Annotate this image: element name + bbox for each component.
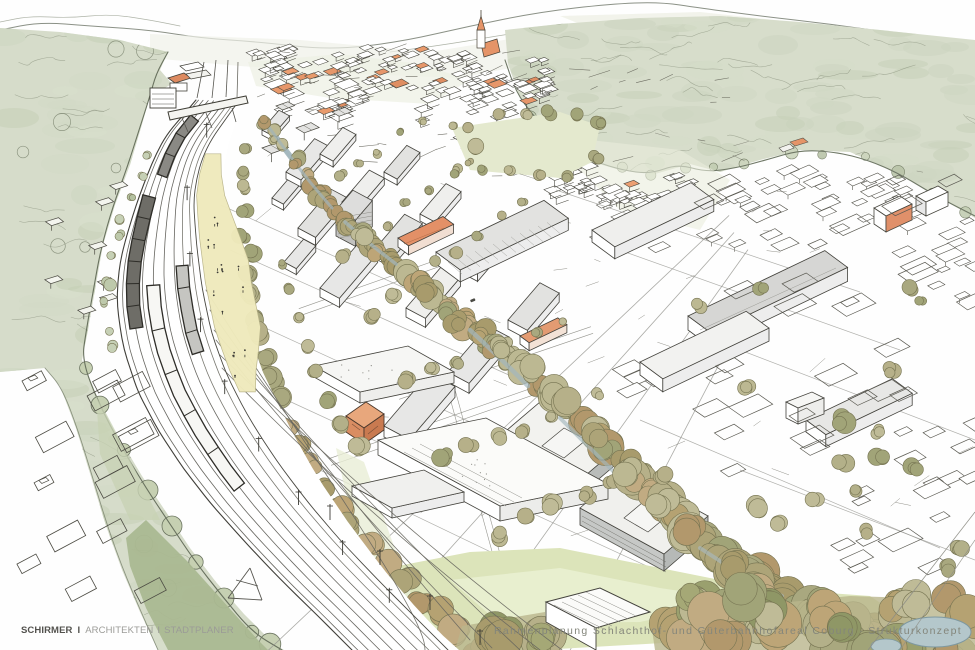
svg-text:Rahmenplanung Schlachthof- und: Rahmenplanung Schlachthof- und Güterbahn… xyxy=(494,625,962,637)
svg-text:SCHIRMERIARCHITEKTENISTADTPLAN: SCHIRMERIARCHITEKTENISTADTPLANER xyxy=(21,625,234,636)
